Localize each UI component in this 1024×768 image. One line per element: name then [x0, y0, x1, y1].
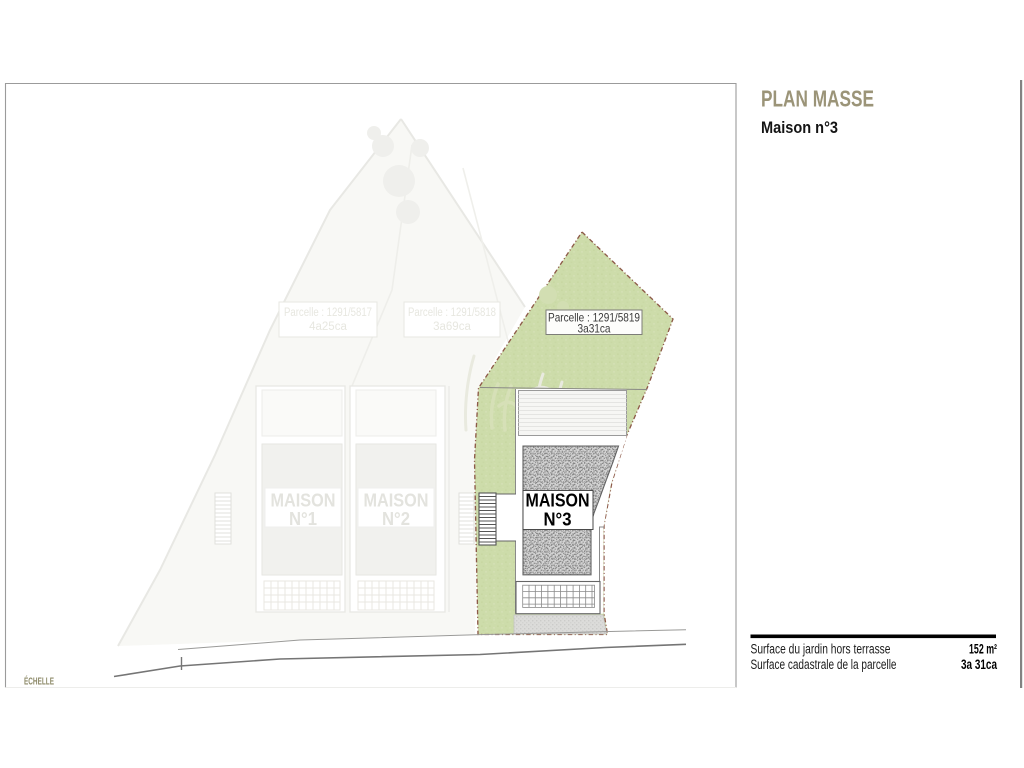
svg-text:PLAN MASSE: PLAN MASSE: [761, 86, 874, 112]
svg-text:152 m²: 152 m²: [969, 642, 997, 657]
svg-text:3a 31ca: 3a 31ca: [961, 657, 997, 672]
svg-text:Parcelle : 1291/5818: Parcelle : 1291/5818: [408, 307, 496, 319]
svg-text:Maison n°3: Maison n°3: [761, 118, 838, 137]
svg-text:N°2: N°2: [382, 508, 410, 529]
svg-text:MAISON: MAISON: [526, 490, 590, 511]
svg-text:N°1: N°1: [289, 508, 317, 529]
svg-text:4a25ca: 4a25ca: [309, 321, 347, 333]
svg-text:Surface cadastrale de la parce: Surface cadastrale de la parcelle: [751, 657, 897, 672]
svg-text:ÉCHELLE: ÉCHELLE: [24, 675, 54, 688]
svg-text:3a69ca: 3a69ca: [433, 321, 471, 333]
svg-text:N°3: N°3: [544, 509, 572, 530]
svg-text:Surface du jardin hors terrass: Surface du jardin hors terrasse: [751, 642, 891, 657]
svg-text:3a31ca: 3a31ca: [578, 321, 611, 335]
svg-text:Parcelle : 1291/5817: Parcelle : 1291/5817: [284, 307, 372, 319]
